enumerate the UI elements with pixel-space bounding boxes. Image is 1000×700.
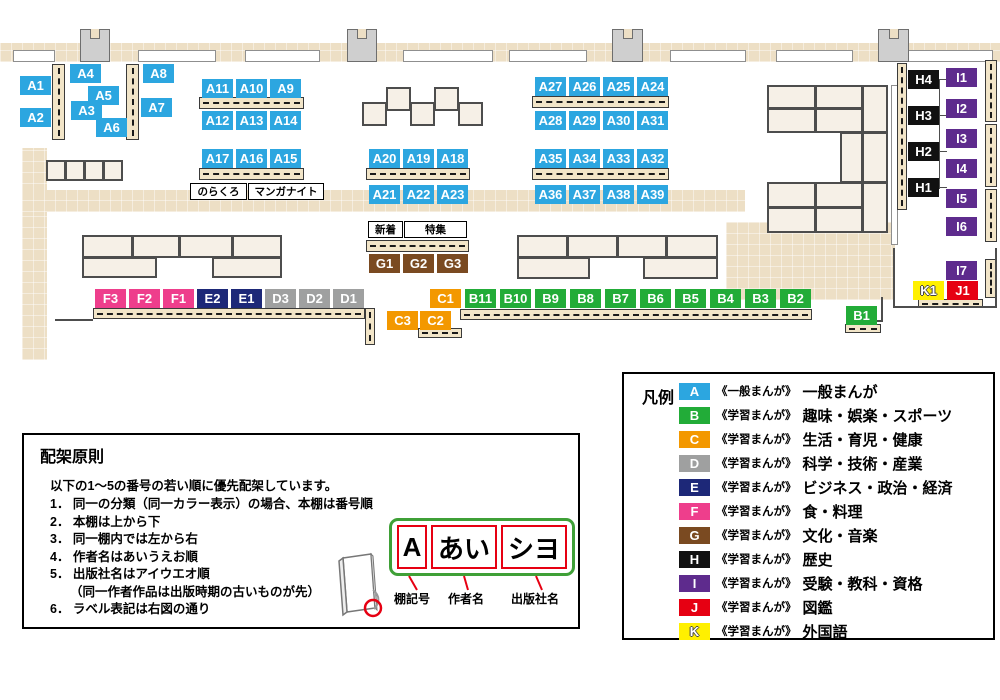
shelf-label-a24: A24 [637,77,668,96]
reading-table [862,132,888,183]
shelf-label-a5: A5 [88,86,119,105]
shelf-label-d3: D3 [265,289,296,308]
reading-table [862,85,888,133]
bookshelf [985,189,997,242]
shelf-label-a19: A19 [403,149,434,168]
bookshelf [985,60,997,122]
reading-table [617,235,667,258]
principle-item-1: 1． 同一の分類（同一カラー表示）の場合、本棚は番号順 [50,496,373,514]
spine-label-diagram: Aあいシヨ [389,518,575,576]
reading-table [767,85,816,109]
reading-table [212,257,282,278]
reading-table [362,102,387,126]
bookshelf [845,324,881,333]
shelf-label-i1: I1 [946,68,977,87]
shelving-principles-box: 配架原則 以下の1～5の番号の若い順に優先配架しています。 1． 同一の分類（同… [22,433,580,629]
bookshelf [199,97,304,109]
shelf-label-g2: G2 [403,254,434,273]
spine-label-part-1: あい [431,525,497,569]
legend-tag: 《学習まんが》 [716,455,797,471]
bookshelf [365,308,375,345]
wall-line [893,248,895,308]
shelf-label-a17: A17 [202,149,233,168]
legend-color-chip: B [679,407,710,424]
shelf-label-h1: H1 [908,178,939,197]
shelf-label-a31: A31 [637,111,668,130]
pillar [612,29,643,62]
reading-table [386,87,411,111]
principle-item-2: 2． 本棚は上から下 [50,514,373,532]
shelf-label-b11: B11 [465,289,496,308]
shelf-label-a7: A7 [141,98,172,117]
book-illustration [329,548,387,624]
shelf-label-b8: B8 [570,289,601,308]
reading-table [815,207,863,233]
reading-table [46,160,66,181]
map-annotation-1: マンガナイト [248,183,324,200]
window [13,50,55,62]
legend-color-chip: F [679,503,710,520]
legend-category: 外国語 [803,621,848,642]
legend-category: 食・料理 [803,501,863,522]
bookshelf [93,308,365,319]
shelf-label-d2: D2 [299,289,330,308]
principle-item-5: 5． 出版社名はアイウエオ順 [50,566,373,584]
shelf-label-k1: K1 [913,281,944,300]
shelf-label-a20: A20 [369,149,400,168]
legend-color-chip: J [679,599,710,616]
reading-table [82,235,133,258]
shelf-label-a1: A1 [20,76,51,95]
shelf-label-b2: B2 [780,289,811,308]
legend-color-chip: E [679,479,710,496]
reading-table [567,235,618,258]
legend-row-c: C《学習まんが》生活・育児・健康 [679,428,953,450]
pillar [80,29,110,62]
shelf-label-e1: E1 [231,289,262,308]
shelf-label-g1: G1 [369,254,400,273]
legend-row-g: G《学習まんが》文化・音楽 [679,524,953,546]
reading-table [767,182,816,208]
shelf-label-f3: F3 [95,289,126,308]
wall-line [893,306,997,308]
shelf-label-h4: H4 [908,70,939,89]
legend-row-k: K《学習まんが》外国語 [679,620,953,642]
window [509,50,587,62]
reading-table [82,257,157,278]
bookshelf [126,64,139,140]
walkway [22,148,47,360]
reading-table [815,182,863,208]
reading-table [517,257,590,279]
bookshelf [52,64,65,140]
shelf-label-a27: A27 [535,77,566,96]
legend-row-j: J《学習まんが》図鑑 [679,596,953,618]
legend-tag: 《学習まんが》 [716,551,797,567]
spine-label-part-2: シヨ [501,525,567,569]
reading-table [767,207,816,233]
shelf-label-a2: A2 [20,108,51,127]
reading-table [434,87,459,111]
principle-note: （同一作者作品は出版時期の古いものが先） [50,584,373,602]
map-annotation-3: 特集 [404,221,467,238]
reading-table [840,132,863,183]
shelf-label-b7: B7 [605,289,636,308]
shelf-label-e2: E2 [197,289,228,308]
shelf-label-a8: A8 [143,64,174,83]
legend-row-i: I《学習まんが》受験・教科・資格 [679,572,953,594]
shelf-label-a16: A16 [236,149,267,168]
shelf-label-a33: A33 [603,149,634,168]
shelf-label-a30: A30 [603,111,634,130]
principles-list: 1． 同一の分類（同一カラー表示）の場合、本棚は番号順2． 本棚は上から下3． … [50,496,373,619]
shelf-label-a34: A34 [569,149,600,168]
reading-table [410,102,435,126]
pillar [347,29,377,62]
legend-tag: 《学習まんが》 [716,623,797,639]
shelf-label-j1: J1 [947,281,978,300]
legend-row-b: B《学習まんが》趣味・娯楽・スポーツ [679,404,953,426]
shelf-label-a38: A38 [603,185,634,204]
reading-table [232,235,282,258]
shelf-label-a22: A22 [403,185,434,204]
legend-category: 趣味・娯楽・スポーツ [803,405,953,426]
window [903,50,993,62]
principles-title: 配架原則 [40,443,104,467]
map-annotation-2: 新着 [368,221,403,238]
principle-item-4: 4． 作者名はあいうえお順 [50,549,373,567]
shelf-label-b4: B4 [710,289,741,308]
shelf-label-c2: C2 [420,311,451,330]
shelf-label-a36: A36 [535,185,566,204]
legend-tag: 《学習まんが》 [716,527,797,543]
legend-color-chip: I [679,575,710,592]
legend-color-chip: C [679,431,710,448]
shelf-label-a26: A26 [569,77,600,96]
shelf-label-i2: I2 [946,99,977,118]
bookshelf [897,63,907,210]
window [403,50,493,62]
shelf-label-a9: A9 [270,79,301,98]
wall-line [995,248,997,308]
legend-tag: 《一般まんが》 [716,383,797,399]
legend-tag: 《学習まんが》 [716,431,797,447]
bookshelf [985,124,997,187]
shelf-label-g3: G3 [437,254,468,273]
shelf-label-a21: A21 [369,185,400,204]
reading-table [84,160,104,181]
legend-tag: 《学習まんが》 [716,575,797,591]
legend-color-chip: A [679,383,710,400]
shelf-label-c1: C1 [430,289,461,308]
legend-color-chip: G [679,527,710,544]
shelf-label-d1: D1 [333,289,364,308]
shelf-label-b9: B9 [535,289,566,308]
shelf-label-a28: A28 [535,111,566,130]
shelf-label-b6: B6 [640,289,671,308]
legend-color-chip: D [679,455,710,472]
legend-rows: A《一般まんが》一般まんがB《学習まんが》趣味・娯楽・スポーツC《学習まんが》生… [679,380,953,642]
shelf-label-a13: A13 [236,111,267,130]
shelf-label-a11: A11 [202,79,233,98]
bookshelf [532,168,669,180]
legend-category: 文化・音楽 [803,525,878,546]
shelf-label-a6: A6 [96,118,127,137]
legend-category: 科学・技術・産業 [803,453,923,474]
reading-table [815,108,863,133]
window [138,50,216,62]
pillar [878,29,909,62]
legend-row-f: F《学習まんが》食・料理 [679,500,953,522]
legend-category: 生活・育児・健康 [803,429,923,450]
shelf-label-a37: A37 [569,185,600,204]
shelf-label-a10: A10 [236,79,267,98]
shelf-label-a12: A12 [202,111,233,130]
legend-tag: 《学習まんが》 [716,407,797,423]
legend-tag: 《学習まんが》 [716,479,797,495]
legend-row-h: H《学習まんが》歴史 [679,548,953,570]
shelf-label-b5: B5 [675,289,706,308]
window [670,50,746,62]
shelf-label-a35: A35 [535,149,566,168]
spine-label-part-0: A [397,525,427,569]
wall-line [55,319,93,321]
legend-title: 凡例 [642,384,674,408]
reading-table [517,235,568,258]
principle-item-3: 3． 同一棚内では左から右 [50,531,373,549]
reading-table [65,160,85,181]
legend-box: 凡例 A《一般まんが》一般まんがB《学習まんが》趣味・娯楽・スポーツC《学習まん… [622,372,995,640]
pointer-lines [384,575,580,593]
legend-tag: 《学習まんが》 [716,599,797,615]
shelf-label-h2: H2 [908,142,939,161]
shelf-label-b10: B10 [500,289,531,308]
reading-table [767,108,816,133]
shelf-label-f1: F1 [163,289,194,308]
shelf-label-c3: C3 [387,311,418,330]
shelf-label-a25: A25 [603,77,634,96]
legend-row-e: E《学習まんが》ビジネス・政治・経済 [679,476,953,498]
legend-row-d: D《学習まんが》科学・技術・産業 [679,452,953,474]
shelf-label-i7: I7 [946,261,977,280]
legend-color-chip: H [679,551,710,568]
reading-table [103,160,123,181]
reading-table [862,182,888,233]
window [776,50,853,62]
shelf-label-a29: A29 [569,111,600,130]
legend-color-chip: K [679,623,710,640]
wall-line [881,297,883,322]
reading-table [666,235,718,258]
shelf-label-a15: A15 [270,149,301,168]
window [245,50,320,62]
legend-tag: 《学習まんが》 [716,503,797,519]
bookshelf [532,96,669,108]
bookshelf [460,309,812,320]
shelf-label-i6: I6 [946,217,977,236]
reading-table [643,257,718,279]
legend-row-a: A《一般まんが》一般まんが [679,380,953,402]
shelf-label-b3: B3 [745,289,776,308]
legend-category: 歴史 [803,549,833,570]
shelf-label-i4: I4 [946,159,977,178]
shelf-label-a18: A18 [437,149,468,168]
shelf-label-i5: I5 [946,189,977,208]
legend-category: ビジネス・政治・経済 [803,477,953,498]
shelf-label-a39: A39 [637,185,668,204]
shelf-label-i3: I3 [946,129,977,148]
shelf-label-a23: A23 [437,185,468,204]
bookshelf [199,168,304,180]
principles-intro: 以下の1～5の番号の若い順に優先配架しています。 [50,475,337,494]
reading-table [132,235,180,258]
shelf-label-h3: H3 [908,106,939,125]
shelf-label-b1: B1 [846,306,877,325]
bookshelf [366,240,469,252]
reading-table [179,235,233,258]
principle-item-6: 6． ラベル表記は右図の通り [50,601,373,619]
shelf-label-a14: A14 [270,111,301,130]
reading-table [458,102,483,126]
shelf-label-f2: F2 [129,289,160,308]
reading-table [815,85,863,109]
legend-category: 図鑑 [803,597,833,618]
legend-category: 受験・教科・資格 [803,573,923,594]
bookshelf [366,168,470,180]
shelf-label-a4: A4 [70,64,101,83]
legend-category: 一般まんが [803,381,878,402]
map-annotation-0: のらくろ [190,183,247,200]
wall-line [939,79,940,189]
shelf-label-a32: A32 [637,149,668,168]
